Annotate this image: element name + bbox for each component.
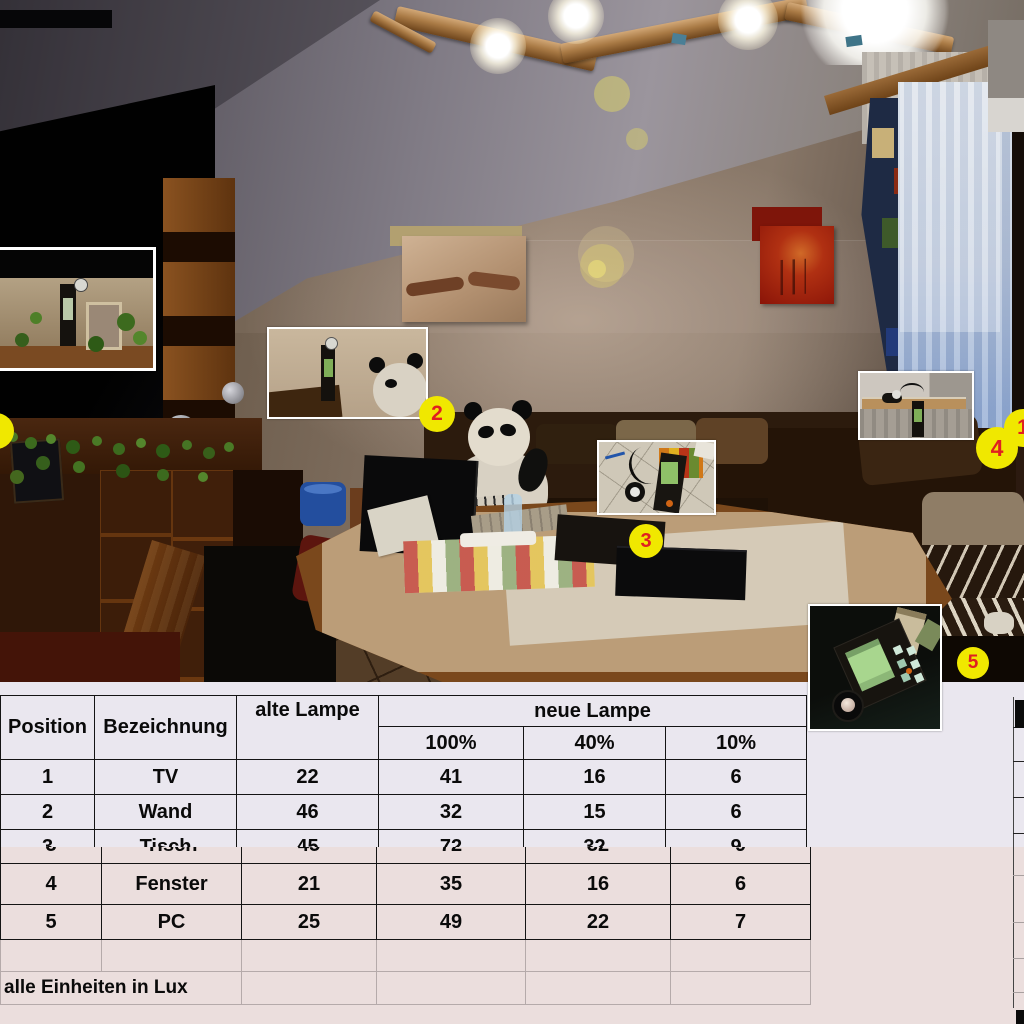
empty-cell [671, 940, 811, 972]
cell-alte: 25 [242, 905, 377, 940]
inset-shelf-board [0, 346, 153, 368]
glitch-black-bar [0, 10, 112, 28]
cell-neue-10: 6 [666, 795, 807, 830]
position-marker-5: 5 [957, 647, 989, 679]
lux-meter-button [666, 500, 673, 507]
inset-photo-frame [86, 302, 122, 350]
painting-creation-of-adam [402, 236, 526, 322]
cell-position: 5 [1, 905, 102, 940]
photo-frame [10, 438, 64, 503]
lens-flare [594, 76, 630, 112]
header-position: Position [1, 696, 95, 760]
marker-number: 4 [991, 435, 1004, 462]
table-row-empty [1, 940, 811, 972]
sheer-curtain-highlight [900, 82, 1000, 332]
cell-alte: 45 [242, 847, 377, 864]
table-row: 2 Wand 46 32 15 6 [1, 795, 807, 830]
cell-neue-40: 16 [526, 864, 671, 905]
cell-neue-100: 41 [379, 760, 524, 795]
cell-position: 3 [1, 847, 102, 864]
cell-alte: 22 [237, 760, 379, 795]
cell-bezeichnung: TV [95, 760, 237, 795]
inset-photo-position-5-pc-desk [808, 604, 942, 731]
lens-flare [588, 260, 606, 278]
cell-bezeichnung: Fenster [102, 864, 242, 905]
lux-sensor-dome [841, 698, 855, 712]
empty-cell [102, 940, 242, 972]
inset-photo-position-1-tv-shelf [0, 247, 156, 371]
table-row: 4 Fenster 21 35 16 6 [1, 864, 811, 905]
lens-flare [626, 128, 648, 150]
cell-position: 4 [1, 864, 102, 905]
empty-cell [242, 940, 377, 972]
inset-photo-position-2-wall-panda [267, 327, 428, 419]
position-marker-2: 2 [419, 396, 455, 432]
table-fragment-tick [1013, 761, 1024, 762]
table-row: 1 TV 22 41 16 6 [1, 760, 807, 795]
table-fragment-tick [1013, 958, 1024, 959]
lux-measurement-table-continued: 3 Tisch 45 72 32 9 4 Fenster 21 35 16 6 … [0, 847, 811, 1005]
empty-cell [1, 940, 102, 972]
empty-cell [377, 972, 526, 1005]
table-row: 3 Tisch 45 72 32 9 [1, 847, 811, 864]
table-row: 5 PC 25 49 22 7 [1, 905, 811, 940]
lux-meter-screen [914, 409, 922, 422]
position-marker-3: 3 [629, 524, 663, 558]
panda-eye-patch [385, 379, 397, 388]
inset-photo-position-4-window [858, 371, 974, 440]
table-fragment-tick [1013, 797, 1024, 798]
table-row-footnote: alle Einheiten in Lux [1, 972, 811, 1005]
lux-table-lower: 3 Tisch 45 72 32 9 4 Fenster 21 35 16 6 … [0, 847, 812, 1008]
lux-meter-button [906, 668, 912, 674]
curtain-patch [872, 128, 894, 158]
empty-cell [242, 972, 377, 1005]
cell-neue-40: 16 [524, 760, 666, 795]
frog-figurines [30, 312, 42, 324]
marker-number: 5 [968, 652, 979, 674]
lux-meter-screen [63, 298, 73, 320]
glitch-black-square [1016, 1010, 1024, 1024]
annotated-room-measurement-figure: 2 3 4 1 5 Position Bezeichnung alte Lamp… [0, 0, 1024, 1024]
cell-neue-40: 32 [526, 847, 671, 864]
marker-number: 2 [431, 402, 443, 426]
cell-neue-40: 15 [524, 795, 666, 830]
cell-neue-100: 35 [377, 864, 526, 905]
glitch-gray-block [988, 20, 1024, 98]
cell-position: 1 [1, 760, 95, 795]
header-neue-lampe: neue Lampe [379, 696, 807, 727]
blue-barrel [300, 482, 346, 526]
inset-tv-edge [0, 250, 153, 278]
panda-plush-head [468, 408, 530, 466]
table-fragment-line [1013, 697, 1014, 1008]
wall-lamp [222, 382, 244, 404]
empty-cell [671, 972, 811, 1005]
cell-alte: 46 [237, 795, 379, 830]
cell-neue-10: 6 [671, 864, 811, 905]
lux-sensor-dome [892, 390, 901, 399]
cell-bezeichnung: Tisch [102, 847, 242, 864]
cell-bezeichnung: Wand [95, 795, 237, 830]
table-fragment-tick [1013, 875, 1024, 876]
empty-cell [377, 940, 526, 972]
cell-neue-100: 49 [377, 905, 526, 940]
cell-neue-100: 72 [377, 847, 526, 864]
cell-neue-100: 32 [379, 795, 524, 830]
inset-photo-position-3-table [597, 440, 716, 515]
cell-bezeichnung: PC [102, 905, 242, 940]
empty-cell [526, 940, 671, 972]
table-fragment-tick [1013, 922, 1024, 923]
header-bezeichnung: Bezeichnung [95, 696, 237, 760]
cell-neue-10: 9 [671, 847, 811, 864]
units-footnote: alle Einheiten in Lux [1, 972, 242, 1005]
marker-number: 1 [1017, 416, 1024, 440]
marker-number: 3 [640, 530, 651, 553]
empty-cell [526, 972, 671, 1005]
lux-meter-screen [661, 462, 678, 484]
subheader-10: 10% [666, 727, 807, 760]
cell-neue-40: 22 [526, 905, 671, 940]
header-alte-lampe: alte Lampe [237, 696, 379, 760]
cell-neue-10: 7 [671, 905, 811, 940]
pen [605, 451, 625, 459]
sensor-cable [900, 383, 924, 401]
lux-table-upper: Position Bezeichnung alte Lampe neue Lam… [0, 695, 807, 865]
cell-position: 2 [1, 795, 95, 830]
cell-alte: 21 [242, 864, 377, 905]
lux-measurement-table: Position Bezeichnung alte Lampe neue Lam… [0, 695, 807, 865]
red-rug [0, 632, 180, 682]
lux-sensor-puck [625, 482, 645, 502]
table-fragment-tick [1013, 833, 1024, 834]
subheader-100: 100% [379, 727, 524, 760]
glitch-white-block [988, 98, 1024, 132]
spotlight-glow [470, 18, 526, 74]
blanket-patch [984, 612, 1014, 634]
table-fragment-tick [1013, 992, 1024, 993]
lux-sensor-dome [74, 278, 88, 292]
cell-neue-10: 6 [666, 760, 807, 795]
lux-sensor-dome [325, 337, 338, 350]
red-painting [760, 226, 834, 304]
subheader-40: 40% [524, 727, 666, 760]
lux-meter-screen [324, 359, 333, 377]
table-fragment-bold-mark [1015, 700, 1024, 728]
